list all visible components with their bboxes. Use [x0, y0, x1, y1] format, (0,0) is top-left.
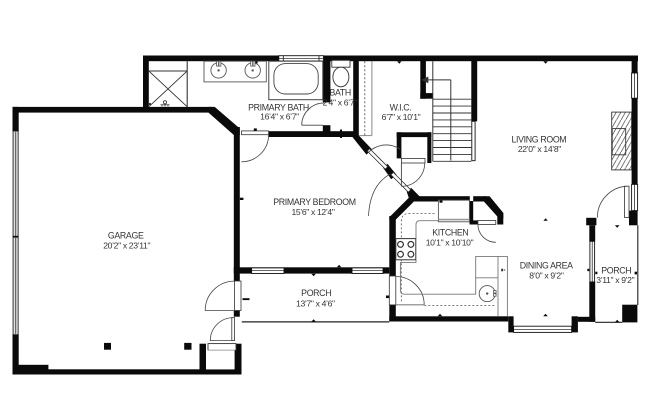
svg-text:8’0" x 9’2": 8’0" x 9’2"	[529, 271, 564, 281]
svg-text:W.I.C.: W.I.C.	[390, 103, 412, 113]
svg-text:15’6" x 12’4": 15’6" x 12’4"	[291, 207, 334, 217]
svg-text:3’11" x 9’2": 3’11" x 9’2"	[596, 275, 634, 285]
svg-text:PORCH: PORCH	[601, 266, 631, 276]
svg-text:10’1" x 10’10": 10’1" x 10’10"	[426, 237, 474, 247]
svg-text:6’7" x 10’1": 6’7" x 10’1"	[382, 112, 421, 122]
svg-text:PORCH: PORCH	[301, 288, 331, 298]
svg-text:GARAGE: GARAGE	[108, 230, 144, 240]
svg-text:16’4" x 6’7": 16’4" x 6’7"	[260, 111, 299, 121]
svg-text:2’4" x 6’7": 2’4" x 6’7"	[323, 98, 358, 108]
svg-text:22’0" x 14’8": 22’0" x 14’8"	[518, 144, 561, 154]
svg-text:KITCHEN: KITCHEN	[432, 228, 468, 238]
svg-text:DINING AREA: DINING AREA	[520, 260, 573, 270]
svg-text:20’2" x 23’11": 20’2" x 23’11"	[103, 240, 150, 250]
svg-text:LIVING ROOM: LIVING ROOM	[511, 135, 566, 145]
svg-text:PRIMARY BEDROOM: PRIMARY BEDROOM	[273, 197, 355, 207]
svg-text:13’7" x 4’6": 13’7" x 4’6"	[296, 299, 335, 309]
svg-text:BATH: BATH	[329, 88, 350, 98]
